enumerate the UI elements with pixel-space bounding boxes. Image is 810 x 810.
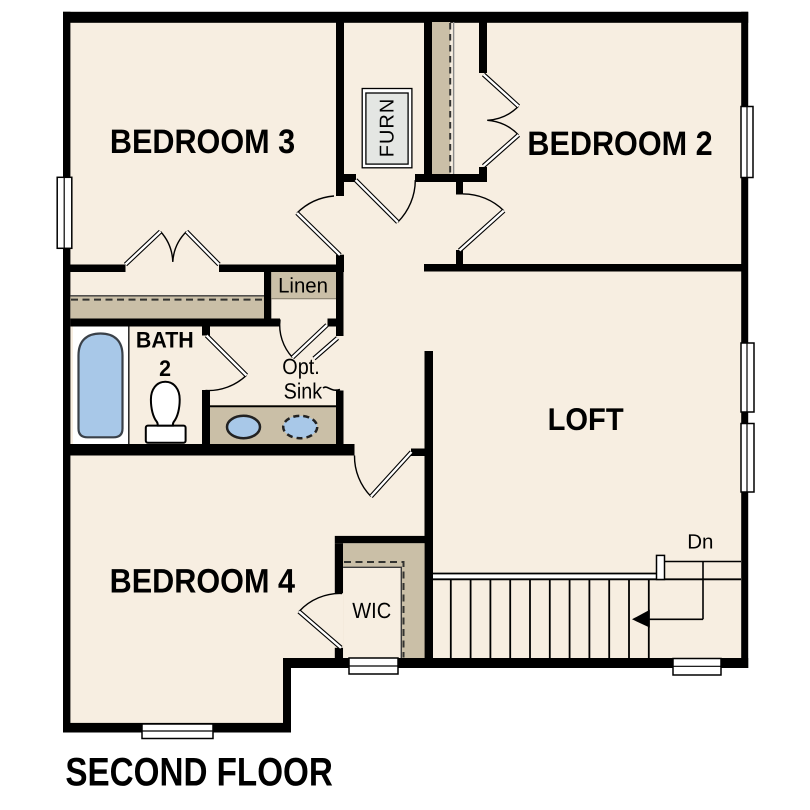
svg-text:BATH: BATH [136, 327, 194, 352]
svg-text:Sink: Sink [284, 378, 323, 403]
svg-text:Opt.: Opt. [282, 354, 319, 379]
svg-text:BEDROOM 2: BEDROOM 2 [527, 125, 712, 163]
svg-text:BEDROOM 3: BEDROOM 3 [110, 123, 295, 161]
svg-text:Linen: Linen [278, 274, 328, 297]
svg-text:2: 2 [159, 356, 171, 381]
svg-text:SECOND FLOOR: SECOND FLOOR [65, 750, 333, 794]
svg-text:Dn: Dn [687, 531, 713, 554]
svg-text:BEDROOM 4: BEDROOM 4 [110, 563, 295, 601]
svg-text:WIC: WIC [352, 598, 391, 623]
svg-text:LOFT: LOFT [548, 401, 624, 437]
svg-text:FURN: FURN [377, 98, 399, 158]
